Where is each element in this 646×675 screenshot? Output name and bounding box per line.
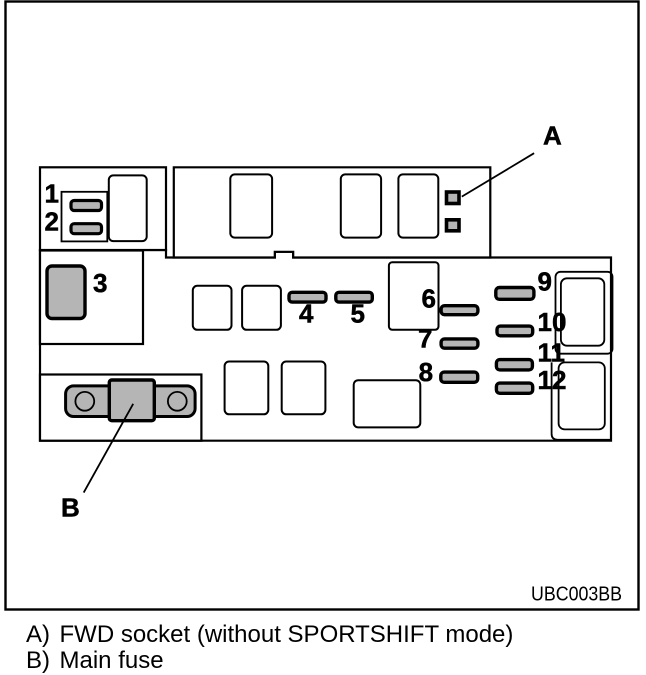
svg-text:8: 8 bbox=[419, 357, 433, 387]
svg-text:4: 4 bbox=[299, 299, 314, 329]
svg-text:7: 7 bbox=[418, 324, 432, 354]
svg-text:UBC003BB: UBC003BB bbox=[531, 584, 622, 606]
svg-text:6: 6 bbox=[422, 283, 436, 313]
svg-text:2: 2 bbox=[45, 207, 59, 237]
svg-text:9: 9 bbox=[538, 267, 552, 297]
svg-text:5: 5 bbox=[351, 299, 365, 329]
svg-text:A: A bbox=[543, 121, 562, 151]
svg-text:B: B bbox=[61, 493, 80, 523]
svg-text:3: 3 bbox=[93, 268, 107, 298]
svg-text:11: 11 bbox=[538, 338, 566, 368]
svg-text:1: 1 bbox=[45, 179, 59, 209]
svg-text:12: 12 bbox=[538, 365, 567, 395]
svg-text:10: 10 bbox=[538, 307, 567, 337]
